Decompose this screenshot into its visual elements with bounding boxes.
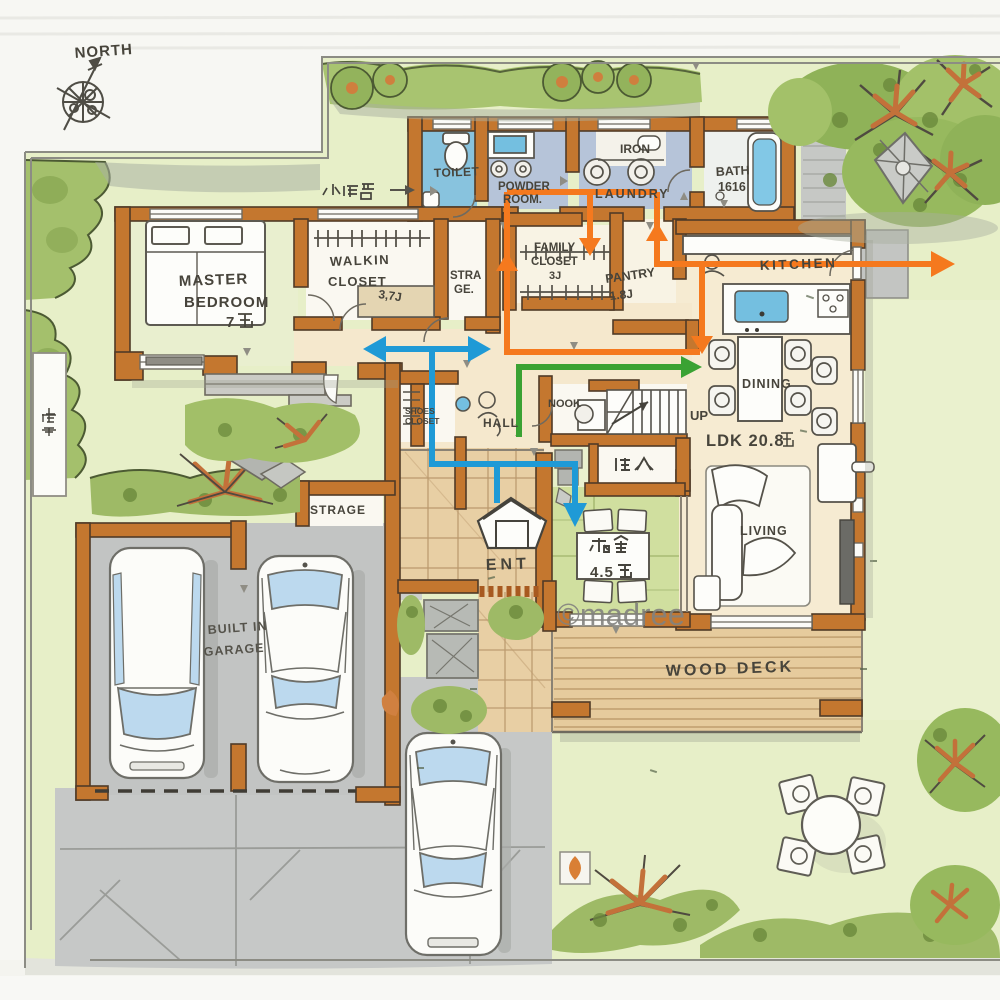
svg-text:1616: 1616 bbox=[718, 180, 746, 194]
svg-text:SHOES: SHOES bbox=[405, 406, 435, 416]
svg-text:UP: UP bbox=[690, 408, 708, 423]
svg-text:ENT: ENT bbox=[486, 555, 531, 574]
svg-text:LAUNDRY: LAUNDRY bbox=[595, 187, 670, 201]
svg-text:HALL: HALL bbox=[483, 416, 519, 430]
svg-text:CLOSET: CLOSET bbox=[405, 416, 440, 426]
svg-text:1.8J: 1.8J bbox=[609, 287, 634, 303]
svg-text:IRON: IRON bbox=[620, 142, 650, 156]
svg-text:ROOM.: ROOM. bbox=[503, 194, 542, 206]
svg-text:7: 7 bbox=[226, 314, 234, 331]
svg-text:BEDROOM: BEDROOM bbox=[184, 294, 269, 311]
svg-text:POWDER: POWDER bbox=[498, 181, 550, 193]
svg-text:TOILET: TOILET bbox=[434, 164, 480, 180]
svg-text:4.5: 4.5 bbox=[590, 564, 614, 581]
svg-text:CLOSET: CLOSET bbox=[328, 274, 387, 289]
svg-text:CLOSET: CLOSET bbox=[531, 256, 578, 268]
svg-text:FAMILY: FAMILY bbox=[534, 242, 575, 254]
svg-text:LDK 20.8: LDK 20.8 bbox=[706, 432, 785, 450]
svg-text:BATH: BATH bbox=[715, 163, 749, 179]
svg-text:GE.: GE. bbox=[454, 284, 474, 296]
svg-text:KITCHEN: KITCHEN bbox=[760, 255, 838, 273]
svg-text:NOOK: NOOK bbox=[548, 398, 581, 410]
svg-text:LIVING: LIVING bbox=[740, 524, 788, 538]
svg-text:WALKIN: WALKIN bbox=[330, 252, 391, 269]
svg-text:3J: 3J bbox=[549, 270, 561, 282]
svg-text:STRAGE: STRAGE bbox=[310, 503, 366, 517]
svg-text:©madree: ©madree bbox=[557, 597, 685, 632]
svg-text:DINING: DINING bbox=[742, 377, 792, 391]
svg-text:STRA: STRA bbox=[450, 270, 481, 282]
svg-text:MASTER: MASTER bbox=[179, 271, 249, 290]
